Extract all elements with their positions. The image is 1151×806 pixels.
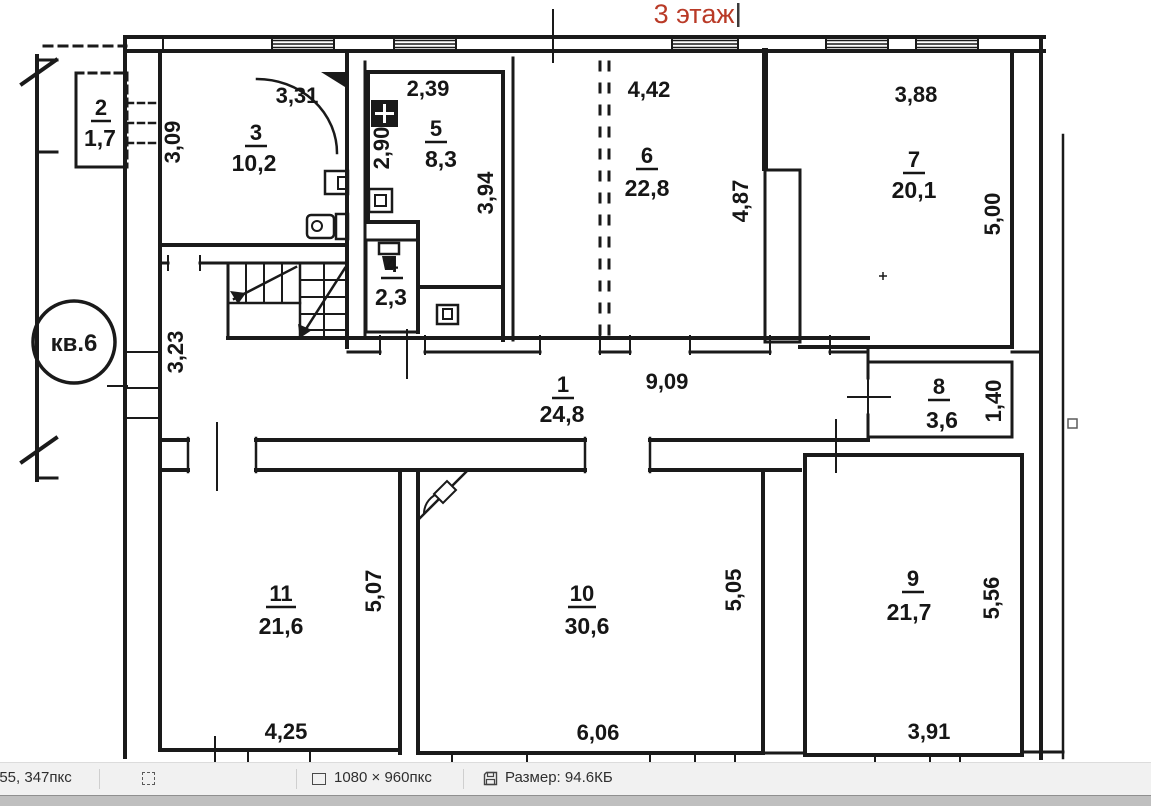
canvas-size-label: 1080 × 960пкс: [334, 769, 432, 786]
room-3-number: 3: [250, 120, 262, 145]
file-save-icon: [483, 771, 498, 786]
dim-5-07: 5,07: [361, 570, 386, 613]
room-7-area: 20,1: [892, 177, 937, 203]
stair-arrow-icon: [298, 324, 312, 338]
dim-4-87: 4,87: [728, 180, 753, 223]
dim-3-31: 3,31: [276, 83, 319, 108]
dim-3-23: 3,23: [163, 331, 188, 374]
room-4-area: 2,3: [375, 284, 407, 310]
room-1-area: 24,8: [540, 401, 585, 427]
window-bottom-edge: [0, 795, 1151, 806]
room-1-number: 1: [557, 372, 569, 397]
room-6-area: 22,8: [625, 175, 670, 201]
dim-3-91: 3,91: [908, 719, 951, 744]
room78-walls: [800, 51, 1041, 437]
dim-3-94: 3,94: [473, 171, 498, 215]
room-6-number: 6: [641, 143, 653, 168]
room-7-number: 7: [908, 147, 920, 172]
sink-icon: [325, 171, 348, 194]
paint-window: 3 этаж: [0, 0, 1151, 806]
dim-3-88: 3,88: [895, 82, 938, 107]
dim-1-40: 1,40: [981, 380, 1006, 423]
statusbar-separator: [463, 769, 464, 789]
dim-4-42: 4,42: [628, 77, 671, 102]
statusbar-separator: [99, 769, 100, 789]
dim-6-06: 6,06: [577, 720, 620, 745]
left-annex: [22, 46, 160, 480]
survey-mark-icon: [879, 272, 887, 280]
apartment-badge: кв.6: [33, 301, 115, 383]
room-10-area: 30,6: [565, 613, 610, 639]
dim-9-09: 9,09: [646, 369, 689, 394]
room-9-area: 21,7: [887, 599, 932, 625]
corner-stove-icon: [420, 472, 466, 518]
dim-5-56: 5,56: [979, 577, 1004, 620]
room-2-area: 1,7: [84, 125, 116, 151]
dim-5-00: 5,00: [980, 193, 1005, 236]
room-labels: 1 2 3 4 5 6 7 8 9 10 11 24,8 1,7 10,2 2,…: [84, 95, 958, 639]
canvas-size-icon: [312, 773, 326, 785]
room-8-area: 3,6: [926, 407, 958, 433]
room-10-number: 10: [570, 581, 594, 606]
sink-icon: [437, 305, 458, 324]
file-size-label: Размер: 94.6КБ: [505, 769, 613, 786]
canvas-resize-handle[interactable]: [1068, 419, 1077, 428]
door-leaf-icon: [321, 72, 345, 87]
room-11-number: 11: [269, 581, 292, 606]
status-bar: 955, 347пкс 1080 × 960пкс Размер: 94.6КБ: [0, 762, 1151, 795]
text-cursor: [737, 3, 740, 27]
sink-icon: [369, 189, 392, 212]
room-8-number: 8: [933, 374, 945, 399]
room-4-number: 4: [386, 252, 399, 277]
image-title-text[interactable]: 3 этаж: [654, 0, 735, 29]
staircase: [228, 263, 347, 338]
corridor-walls: [160, 330, 868, 490]
dim-2-90: 2,90: [369, 127, 394, 170]
window-hatch: [272, 41, 978, 48]
dim-2-39: 2,39: [407, 76, 450, 101]
dim-3-09: 3,09: [160, 121, 185, 164]
room3-fixtures: [307, 171, 348, 239]
statusbar-separator: [296, 769, 297, 789]
room-9-number: 9: [907, 566, 919, 591]
room-11-area: 21,6: [259, 613, 304, 639]
selection-size-icon: [142, 772, 155, 785]
wall-pier: [765, 170, 800, 342]
dim-4-25: 4,25: [265, 719, 308, 744]
room-2-number: 2: [95, 95, 107, 120]
cursor-position-label: 955, 347пкс: [0, 769, 72, 786]
floor-plan: 3 этаж: [0, 0, 1151, 762]
room-5-number: 5: [430, 116, 442, 141]
dim-5-05: 5,05: [721, 569, 746, 612]
room-5-area: 8,3: [425, 146, 457, 172]
apartment-label: кв.6: [51, 330, 98, 357]
room-3-area: 10,2: [232, 150, 277, 176]
